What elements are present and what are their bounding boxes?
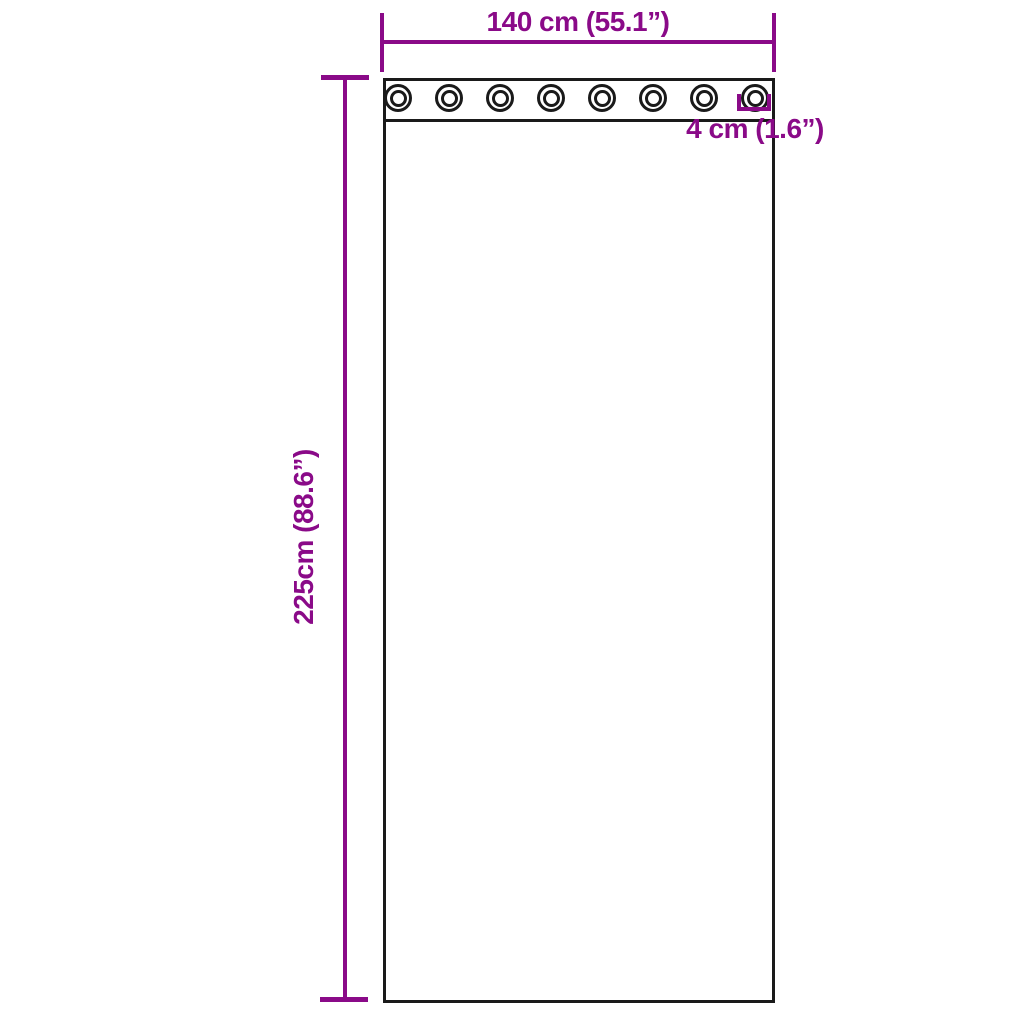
grommet-dimension-label: 4 cm (1.6”) xyxy=(686,113,824,145)
grommet-measure-bracket xyxy=(737,94,771,111)
grommet-inner-ring xyxy=(390,90,407,107)
grommet-eyelet xyxy=(690,84,718,112)
grommet-eyelet xyxy=(639,84,667,112)
curtain-panel xyxy=(383,78,775,1003)
grommet-inner-ring xyxy=(696,90,713,107)
height-dimension-cap-bottom xyxy=(320,997,368,1002)
width-dimension-label: 140 cm (55.1”) xyxy=(383,6,773,38)
grommet-eyelet xyxy=(384,84,412,112)
grommet-eyelet xyxy=(435,84,463,112)
grommet-row xyxy=(383,84,775,112)
grommet-inner-ring xyxy=(645,90,662,107)
height-dimension-cap-top xyxy=(321,75,369,80)
grommet-inner-ring xyxy=(441,90,458,107)
grommet-eyelet xyxy=(486,84,514,112)
grommet-eyelet xyxy=(588,84,616,112)
grommet-inner-ring xyxy=(543,90,560,107)
dimension-diagram: 140 cm (55.1”) 225cm (88.6”) 4 cm (1.6”) xyxy=(0,0,1024,1024)
grommet-inner-ring xyxy=(492,90,509,107)
height-dimension-line xyxy=(343,77,347,999)
width-dimension-line xyxy=(382,40,774,44)
height-dimension-label: 225cm (88.6”) xyxy=(289,407,319,667)
grommet-eyelet xyxy=(537,84,565,112)
grommet-inner-ring xyxy=(594,90,611,107)
